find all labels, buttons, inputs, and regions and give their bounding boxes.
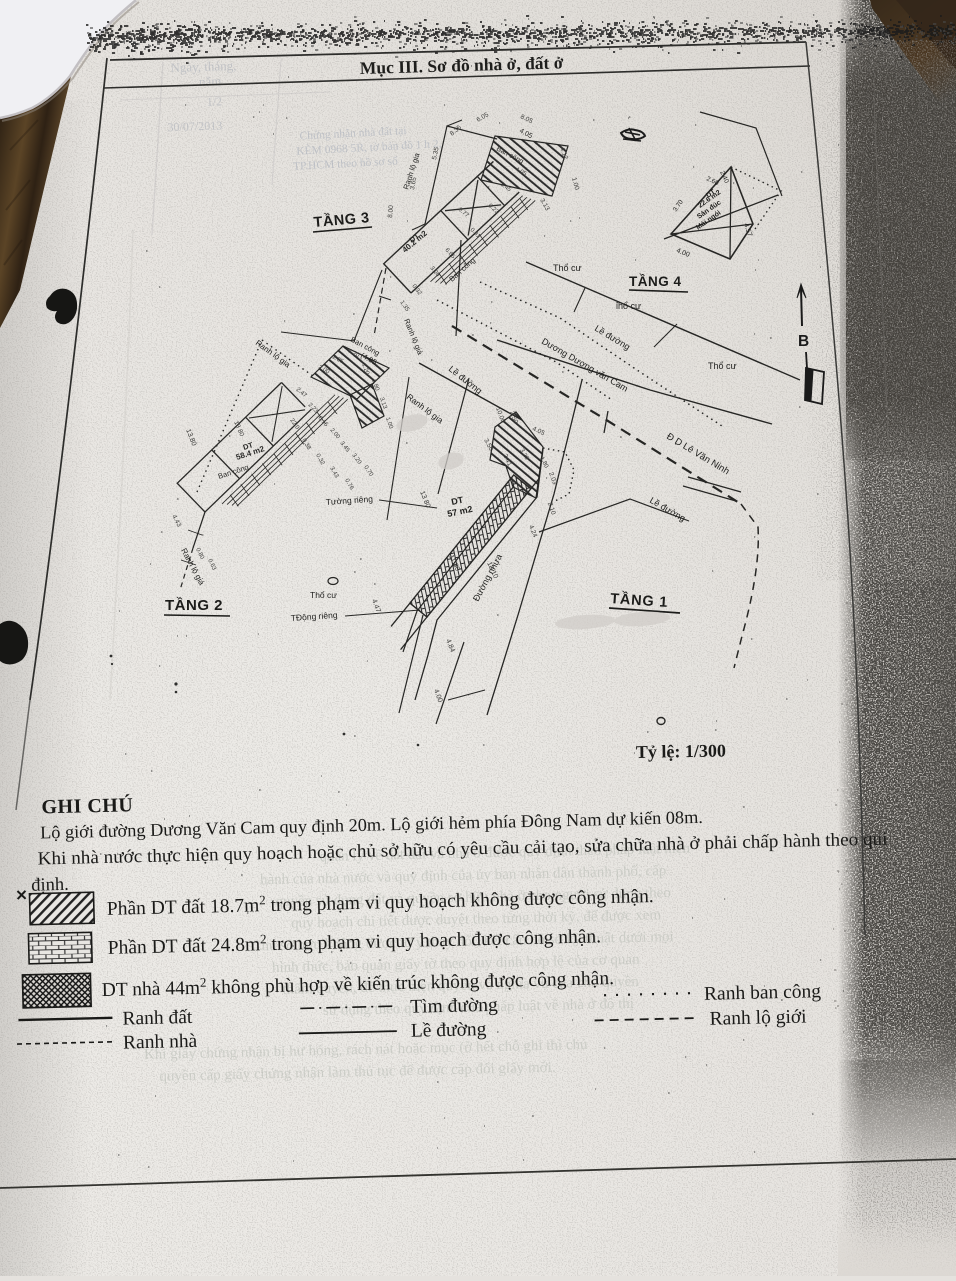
svg-text:Ranh ban công: Ranh ban công [704, 981, 822, 1005]
svg-text:GHI CHÚ: GHI CHÚ [41, 792, 133, 818]
svg-text:30/07/2013: 30/07/2013 [167, 118, 222, 134]
svg-text:Ranh nhà: Ranh nhà [123, 1031, 198, 1054]
svg-text:năm: năm [199, 73, 222, 89]
svg-text:1/2: 1/2 [206, 94, 222, 109]
svg-text:B: B [798, 333, 809, 350]
svg-text:Thổ cư: Thổ cư [708, 361, 737, 371]
svg-text:Thổ cư: Thổ cư [310, 590, 337, 600]
svg-text:Thổ cư: Thổ cư [553, 263, 582, 273]
svg-text:ỉhổ cư: ỉhổ cư [616, 301, 641, 311]
svg-text:Lề đường: Lề đường [411, 1019, 487, 1042]
svg-text:Ranh đất: Ranh đất [122, 1007, 193, 1030]
svg-text:Ngày, tháng,: Ngày, tháng, [170, 58, 236, 75]
svg-text:Tỷ lệ: 1/300: Tỷ lệ: 1/300 [636, 740, 726, 762]
svg-text:Ranh lộ giới: Ranh lộ giới [709, 1006, 807, 1029]
svg-text:TẦNG 4: TẦNG 4 [629, 274, 682, 289]
svg-text:TẦNG 2: TẦNG 2 [165, 597, 223, 614]
svg-text:Tìm đường: Tìm đường [410, 995, 498, 1018]
svg-text:8.00: 8.00 [387, 205, 395, 219]
